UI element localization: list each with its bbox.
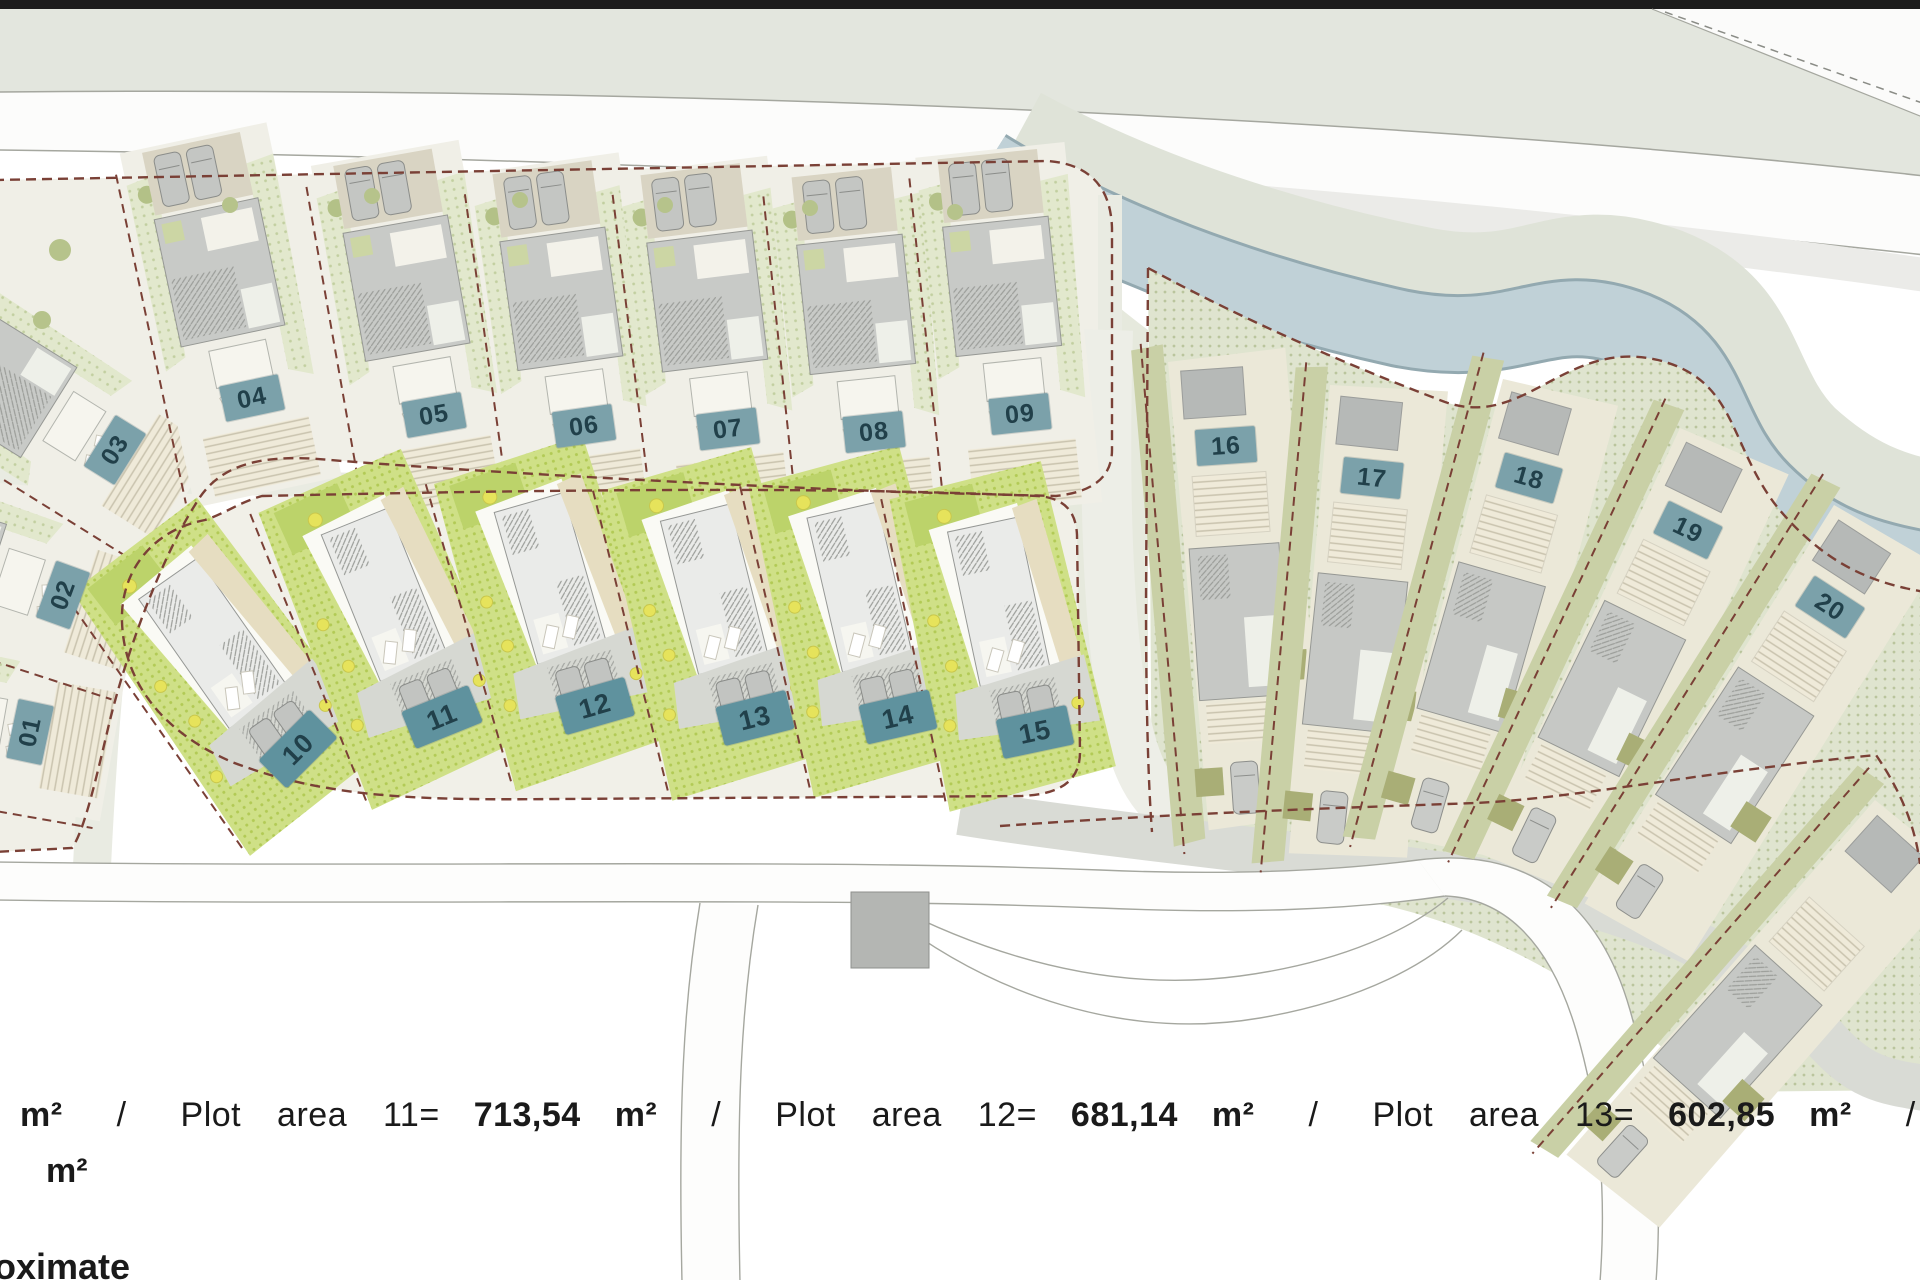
site-plan: 01 02 03 04 05 06 07 08 09 10 11 12 13 1…	[0, 0, 1920, 1280]
legend-unit: m²	[1212, 1096, 1255, 1135]
legend-unit-wrapped: m²	[46, 1152, 88, 1191]
plot-badge: 16	[1195, 426, 1257, 466]
legend-separator: /	[711, 1096, 721, 1135]
legend-separator: /	[117, 1096, 127, 1135]
legend-separator: /	[1308, 1096, 1318, 1135]
legend-segment: Plot area 13=	[1372, 1096, 1634, 1135]
plot-badge: 17	[1340, 457, 1403, 499]
utility-box	[851, 892, 929, 968]
plot-badge: 09	[988, 393, 1051, 435]
plot-area-legend: m² / Plot area 11= 713,54 m² / Plot area…	[20, 1096, 1920, 1135]
legend-value: 713,54	[474, 1096, 581, 1135]
site-map-graphic	[0, 0, 1920, 1280]
map-top-border	[0, 0, 1920, 9]
legend-value: 681,14	[1071, 1096, 1178, 1135]
legend-unit: m²	[615, 1096, 658, 1135]
legend-unit: m²	[1809, 1096, 1852, 1135]
legend-segment: Plot area 11=	[181, 1096, 440, 1135]
legend-segment: Plot area 12=	[775, 1096, 1037, 1135]
legend-segment: m²	[20, 1096, 63, 1135]
plot-badge: 08	[842, 411, 905, 453]
plot-badge: 07	[696, 407, 760, 450]
bottom-road	[0, 858, 1658, 1280]
approximate-note: oximate	[0, 1246, 130, 1280]
legend-value: 602,85	[1668, 1096, 1775, 1135]
legend-separator: /	[1906, 1096, 1916, 1135]
